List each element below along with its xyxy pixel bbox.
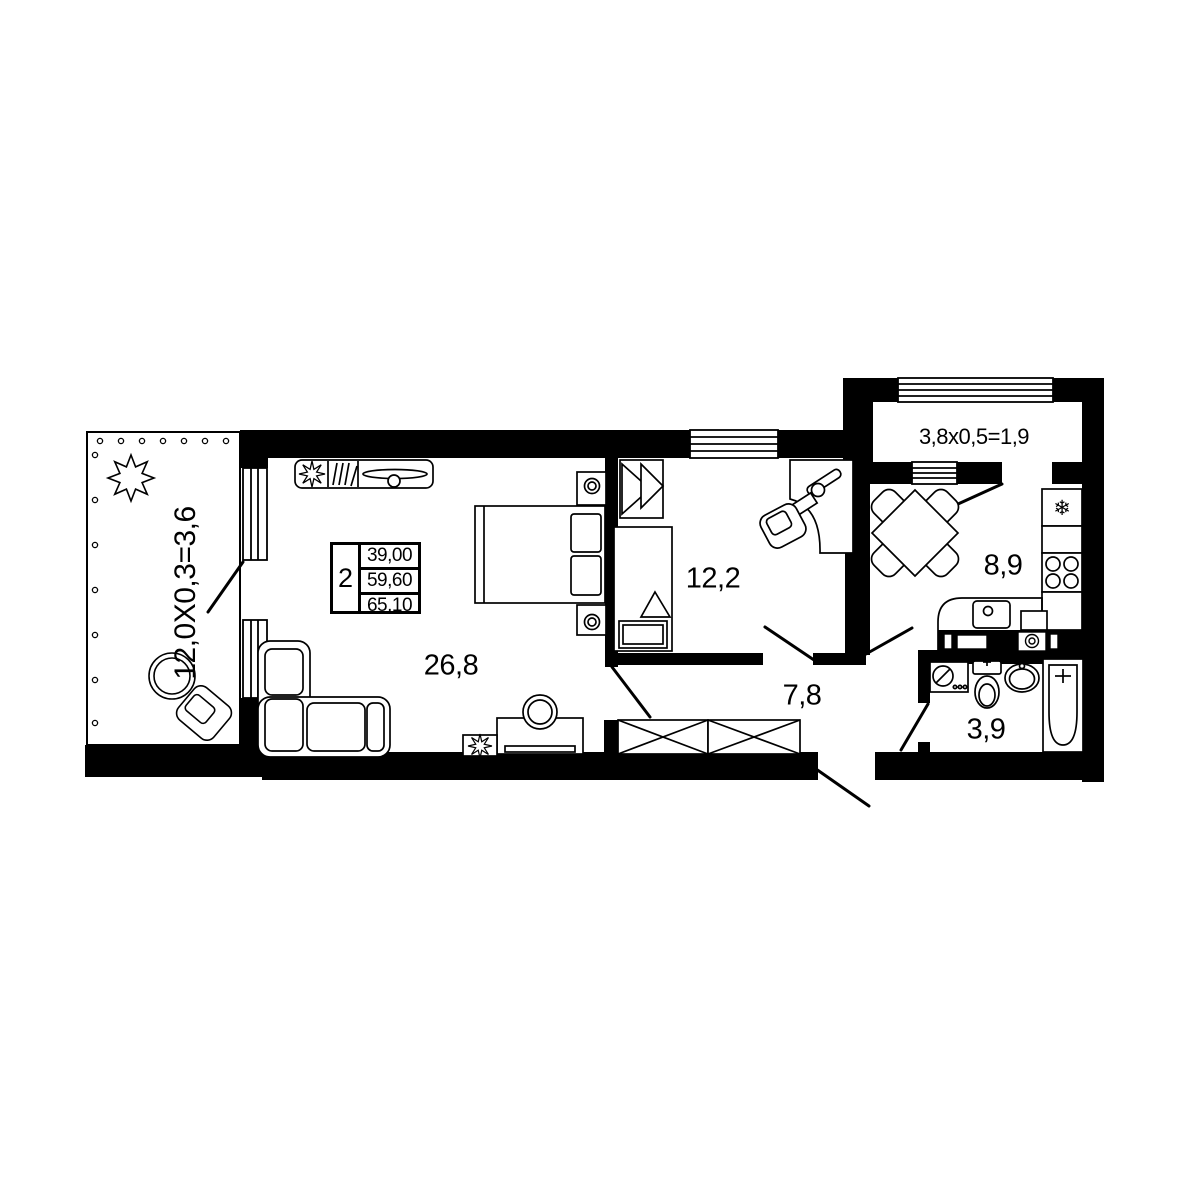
hall-wardrobe (618, 720, 800, 754)
stove (1042, 553, 1082, 592)
spec-rooms-count: 2 (333, 545, 361, 611)
counter-right (1042, 592, 1082, 630)
kitchen-balcony-door (958, 484, 1002, 504)
balcony-left-dimension-label: 12,0X0,3=3,6 (169, 506, 203, 679)
spec-table: 2 39,00 59,60 65,10 (330, 542, 421, 614)
bathroom-sink (1005, 664, 1039, 693)
living-room-furniture (258, 460, 606, 758)
kitchen-door (866, 628, 912, 654)
balcony-top-dimension-label: 3,8x0,5=1,9 (919, 424, 1029, 450)
balcony-door (208, 562, 243, 612)
plant-icon (468, 734, 492, 758)
tree-icon (108, 455, 154, 501)
wardrobe (620, 460, 663, 518)
hallway-area-label: 7,8 (783, 680, 822, 713)
spec-total-area: 65,10 (361, 595, 418, 617)
spec-areas: 39,00 59,60 65,10 (361, 545, 418, 611)
single-bed (614, 527, 672, 651)
kitchen-area-label: 8,9 (984, 550, 1023, 583)
spec-living-area: 39,00 (361, 545, 418, 570)
hallway-furniture (618, 720, 800, 754)
balcony-top-window (898, 378, 1053, 402)
shelf-unit (295, 460, 433, 488)
floor-plan-canvas: ❄ 26,8 12,2 7,8 8,9 3,9 3,8x0,5=1,9 12,0… (0, 0, 1184, 1184)
bedroom-door (765, 627, 814, 660)
double-bed (475, 506, 605, 603)
bathroom-fixtures (930, 658, 1083, 752)
living-room-area-label: 26,8 (424, 650, 478, 683)
kitchen-furniture (868, 486, 1082, 651)
toilet (973, 658, 1001, 708)
living-window-upper (243, 468, 267, 560)
bedroom-area-label: 12,2 (686, 563, 740, 596)
snowflake-icon: ❄ (1053, 496, 1071, 520)
vanity-table (463, 695, 583, 758)
spec-area-wo-balcony: 59,60 (361, 570, 418, 595)
washing-machine (930, 662, 968, 692)
bathroom-area-label: 3,9 (967, 714, 1006, 747)
bedroom-furniture (614, 460, 853, 651)
entrance-door (816, 769, 869, 806)
bathtub (1043, 659, 1083, 752)
bedroom-window (690, 430, 778, 458)
left-balcony (87, 432, 240, 745)
kitchen-window (912, 462, 957, 484)
living-door (612, 667, 650, 717)
plant-icon (299, 461, 325, 487)
corner-sofa (258, 641, 390, 757)
cabinet (1042, 526, 1082, 553)
